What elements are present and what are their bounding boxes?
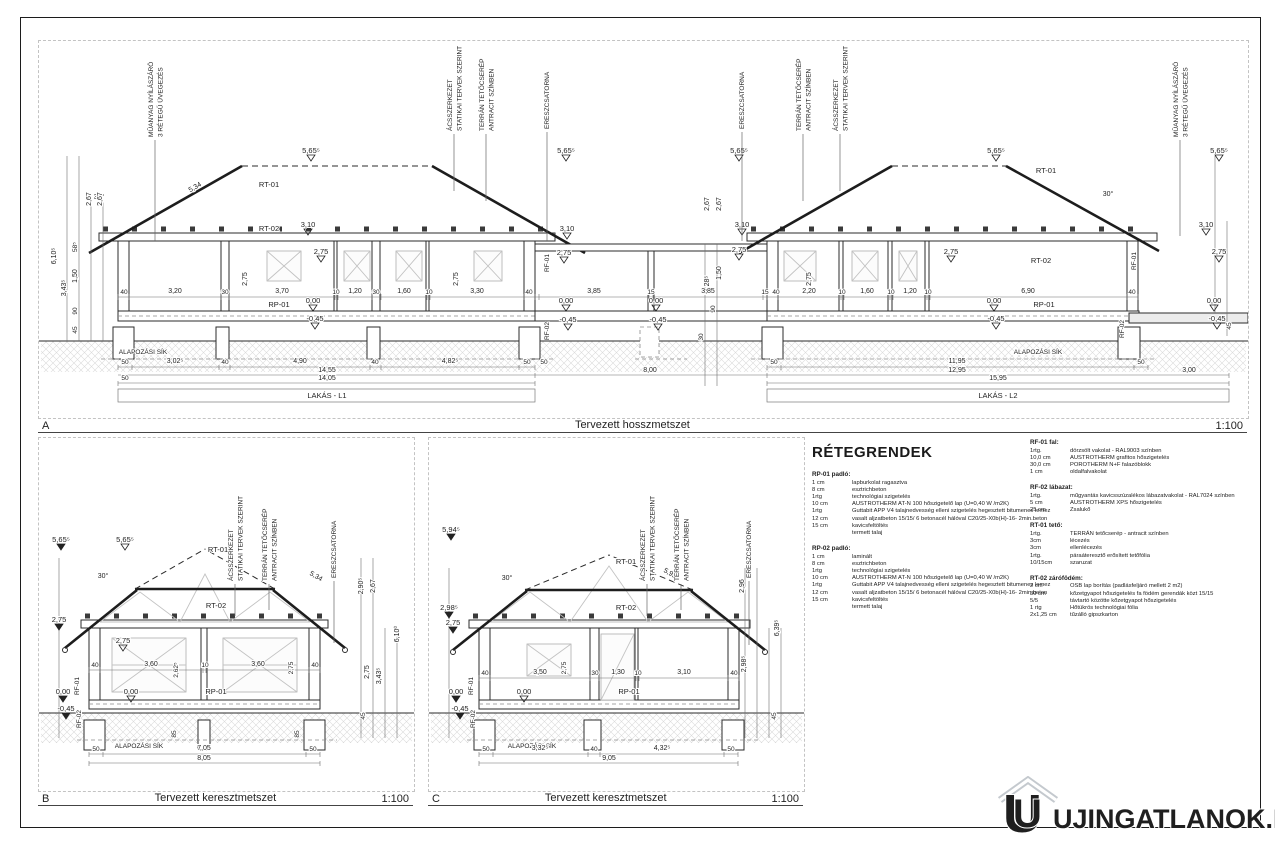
dim-label: 3,20	[168, 288, 182, 295]
dim-label: 6,39⁵	[774, 620, 781, 637]
elevation-marker-icon	[564, 324, 572, 330]
dim-label: 10	[924, 289, 932, 296]
callout-label: ÁCSSZERKEZET	[638, 529, 647, 581]
elevation-marker-icon	[121, 544, 129, 550]
viewport-section-b: 5,65⁵5,65⁵30°2,75RT-01RT-022,750,00-0,45…	[38, 437, 415, 792]
dim-label: 1,50	[716, 266, 723, 280]
dim-label: -0,45	[1208, 314, 1225, 323]
dim-label: RP-01	[205, 687, 226, 696]
dim-label: -0,45	[306, 314, 323, 323]
legend-row: 2x1,25 cmtűzálló gipszkarton	[1030, 612, 1258, 619]
dim-label: 2,75	[446, 618, 461, 627]
dim-label: 2,67	[716, 197, 723, 211]
callout-label: TERRÁN TETŐCSERÉP	[477, 59, 486, 131]
callout-label: ÁCSSZERKEZET	[226, 529, 235, 581]
dim-label: 2,75	[453, 272, 460, 286]
dim-label: 30°	[1103, 190, 1114, 198]
legend-row: 8 cmesztrichbeton	[812, 487, 1027, 494]
dim-label: RT-01	[259, 180, 279, 189]
dim-label: RF-02	[470, 710, 477, 728]
dim-label: 40	[311, 662, 319, 669]
dim-label: RF-02	[1119, 320, 1126, 338]
dim-label: 7,05	[197, 745, 211, 752]
elevation-marker-icon	[560, 257, 568, 263]
legend-group-heading: RF-02 lábazat:	[1030, 484, 1258, 491]
dim-label: 5,65⁵	[116, 535, 134, 544]
section-scale: 1:100	[381, 793, 409, 805]
callout-label: ANTRACIT SZÍNBEN	[270, 518, 279, 581]
callout-label: ERESZCSATORNA	[331, 520, 338, 578]
dim-label: -0,45	[559, 315, 576, 324]
logo-wordmark: UJINGATLANOK.HU	[1053, 804, 1275, 834]
elevation-marker-icon	[992, 323, 1000, 329]
dim-label: RT-01	[208, 545, 228, 554]
legend-row: 10 cmAUSTROTHERM AT-N 100 hőszigetelő la…	[812, 501, 1027, 508]
dim-label: 8,05	[197, 755, 211, 762]
dim-label: 3,32⁵	[532, 745, 549, 752]
legend-group-heading: RP-01 padló:	[812, 471, 1027, 478]
dim-label: 30°	[502, 574, 513, 582]
dim-label: 30	[221, 289, 229, 296]
section-title: Tervezett hosszmetszet	[575, 419, 690, 431]
legend-row: 30 cmkőzetgyapot hőszigetelés fa födém g…	[1030, 591, 1258, 598]
callout-label: ERESZCSATORNA	[746, 520, 753, 578]
section-letter: C	[432, 793, 440, 805]
dim-label: 10	[887, 289, 895, 296]
dim-label: 2,67	[370, 579, 377, 593]
legend-title: RÉTEGRENDEK	[812, 444, 1027, 461]
logo-letter-accent: U	[1013, 792, 1042, 836]
dim-label: 2,75	[52, 615, 67, 624]
dim-label: 50	[1137, 359, 1145, 366]
elevation-marker-icon	[735, 254, 743, 260]
dim-label: RF-01	[544, 254, 551, 272]
dim-label: 3,43⁵	[376, 668, 383, 685]
dim-label: 11,95	[949, 358, 966, 365]
section-b-drawing: 5,65⁵5,65⁵30°2,75RT-01RT-022,750,00-0,45…	[39, 438, 414, 791]
section-scale: 1:100	[771, 793, 799, 805]
dim-label: 45	[1226, 322, 1233, 330]
dim-label: 15	[647, 289, 655, 296]
callout-label: TERRÁN TETŐCSERÉP	[672, 509, 681, 581]
dim-label: 1,50	[72, 269, 79, 283]
dim-label: 50	[523, 359, 531, 366]
legend-row: 3cmlécezés	[1030, 538, 1258, 545]
dim-label: 10	[201, 662, 209, 669]
dim-label: RF-02	[544, 322, 551, 340]
dim-label: 3,50	[533, 669, 547, 676]
dim-label: RF-01	[468, 677, 475, 695]
callout-label: STATIKAI TERVEK SZERINT	[457, 46, 464, 131]
dim-label: 3,43⁵	[61, 280, 68, 297]
dim-label: 9,05	[602, 755, 616, 762]
dim-label: 15	[761, 289, 769, 296]
dim-label: 90	[710, 305, 717, 313]
legend-group-heading: RF-01 fal:	[1030, 439, 1258, 446]
dim-label: 10	[425, 289, 433, 296]
callout-label: MŰANYAG NYÍLÁSZÁRÓ	[1171, 62, 1180, 137]
dim-label: 0,00	[56, 687, 71, 696]
legend-row: termett talaj	[812, 604, 1027, 611]
dim-label: LAKÁS - L2	[978, 391, 1017, 400]
dim-label: RT-02	[616, 603, 636, 612]
dim-label: RP-01	[1033, 300, 1054, 309]
dim-label: 0,00	[987, 296, 1002, 305]
dim-label: 5,65⁵	[52, 535, 70, 544]
dim-label: 50	[770, 359, 778, 366]
dim-label: 5,65⁵	[987, 146, 1005, 155]
legend-row: 1rtgGuttabit APP V4 talajnedvesség ellen…	[812, 508, 1027, 515]
legend-row: 1rtg.dörzsölt vakolat - RAL9003 színben	[1030, 448, 1258, 455]
legend-row: 12 cmvasalt aljzatbeton 15/15/ 6 betonac…	[812, 590, 1027, 597]
dim-label: ALAPOZÁSI SÍK	[119, 347, 168, 356]
dim-label: 30°	[98, 572, 109, 580]
callout-label: ANTRACIT SZÍNBEN	[487, 68, 496, 131]
legend-row: 1 cmlaminált	[812, 554, 1027, 561]
dim-label: 2,75	[116, 636, 131, 645]
callout-label: ÁCSSZERKEZET	[831, 79, 840, 131]
dim-label: 2,96	[739, 579, 746, 593]
dim-label: 10	[332, 289, 340, 296]
dim-label: 2,75	[288, 661, 295, 674]
dim-label: RF-02	[76, 710, 83, 728]
dim-label: 40	[371, 359, 379, 366]
dim-label: 85	[294, 730, 301, 738]
dim-label: -0,45	[451, 704, 468, 713]
dim-label: 10	[838, 289, 846, 296]
legend-row: 3cmellenlécezés	[1030, 545, 1258, 552]
dim-label: 40	[221, 359, 229, 366]
dim-label: 14,55	[318, 367, 336, 374]
dim-label: 2,75	[732, 245, 747, 254]
dim-label: 2,98⁵	[741, 656, 748, 673]
callout-label: ERESZCSATORNA	[544, 71, 551, 129]
dim-label: 4,82⁵	[442, 358, 459, 365]
dim-label: 90	[72, 307, 79, 315]
dim-label: 85	[171, 730, 178, 738]
title-row-c: C Tervezett keresztmetszet 1:100	[428, 790, 803, 806]
dim-label: 30	[591, 670, 599, 677]
dim-label: 5,65⁵	[1210, 146, 1228, 155]
elevation-marker-icon	[1215, 256, 1223, 262]
callout-label: ÁCSSZERKEZET	[445, 79, 454, 131]
section-title: Tervezett keresztmetszet	[545, 792, 667, 804]
dim-label: RT-01	[616, 557, 636, 566]
dim-label: ALAPOZÁSI SÍK	[1014, 347, 1063, 356]
callout-label: STATIKAI TERVEK SZERINT	[843, 46, 850, 131]
legend-row: 25 cmZsalukő	[1030, 507, 1258, 514]
section-scale: 1:100	[1215, 420, 1243, 432]
dim-label: 14,05	[318, 375, 336, 382]
callout-label: ERESZCSATORNA	[739, 71, 746, 129]
legend-group-heading: RT-01 tető:	[1030, 522, 1258, 529]
dim-label: 3,10	[1199, 220, 1214, 229]
dim-label: 50	[121, 359, 129, 366]
dim-label: 3,10	[560, 224, 575, 233]
elevation-marker-icon	[1215, 155, 1223, 161]
dim-label: 45	[360, 712, 367, 720]
dim-label: -0,45	[987, 314, 1004, 323]
dim-label: RF-01	[1131, 252, 1138, 270]
dim-label: 30	[698, 333, 705, 341]
legend-row: 12 cmvasalt aljzatbeton 15/15/ 6 betonac…	[812, 516, 1027, 523]
dim-label: 50	[309, 746, 317, 753]
legend-row: 1rtg.páraáteresztő erősített tetőfólia	[1030, 553, 1258, 560]
legend-row: 1rtg.TERRÁN tetőcserép - antracit színbe…	[1030, 531, 1258, 538]
legend-row: 1 rtgHőtükrös technológiai fólia	[1030, 605, 1258, 612]
legend-row: 30,0 cmPOROTHERM N+F falazóblokk	[1030, 462, 1258, 469]
elevation-marker-icon	[57, 544, 65, 550]
dim-label: 3,10	[677, 669, 691, 676]
dim-label: RP-01	[268, 300, 289, 309]
dim-label: 3,85	[587, 288, 601, 295]
elevation-marker-icon	[563, 233, 571, 239]
legend-wall-roof-layers: RF-01 fal:1rtg.dörzsölt vakolat - RAL900…	[1030, 431, 1258, 619]
dim-label: 50	[121, 375, 129, 382]
dim-label: 40	[730, 670, 738, 677]
section-title: Tervezett keresztmetszet	[155, 792, 277, 804]
legend-floor-layers: RÉTEGRENDEK RP-01 padló:1 cmlapburkolat …	[812, 444, 1027, 611]
dim-label: 40	[1128, 289, 1136, 296]
dim-label: 50	[92, 746, 100, 753]
elevation-marker-icon	[452, 696, 460, 702]
dim-label: 58⁵	[72, 242, 79, 252]
dim-label: 2,75	[806, 272, 813, 286]
dim-label: 12,95	[948, 367, 966, 374]
dim-label: 2,90⁵	[358, 578, 365, 595]
dim-label: 3,60	[144, 661, 158, 668]
section-a-drawing: 5,65⁵5,65⁵5,65⁵5,65⁵5,65⁵3,103,103,103,1…	[39, 41, 1248, 418]
dim-label: 2,75	[242, 272, 249, 286]
legend-row: 10 cmAUSTROTHERM AT-N 100 hőszigetelő la…	[812, 575, 1027, 582]
dim-label: 2,98⁵	[440, 603, 458, 612]
elevation-marker-icon	[1213, 323, 1221, 329]
dim-label: 2,75	[944, 247, 959, 256]
legend-row: 1 cmlapburkolat ragasztva	[812, 480, 1027, 487]
title-row-b: B Tervezett keresztmetszet 1:100	[38, 790, 413, 806]
elevation-marker-icon	[449, 627, 457, 633]
dim-label: 5,94⁵	[442, 525, 460, 534]
legend-row: 5/5távtartó közötte kőzetgyapot hősziget…	[1030, 598, 1258, 605]
callout-label: TERRÁN TETŐCSERÉP	[794, 59, 803, 131]
elevation-marker-icon	[59, 696, 67, 702]
elevation-marker-icon	[1210, 305, 1218, 311]
dim-label: 40	[481, 670, 489, 677]
dim-label: 40	[120, 289, 128, 296]
legend-row: 10/15cmszaruzat	[1030, 560, 1258, 567]
elevation-marker-icon	[317, 256, 325, 262]
drawing-sheet: 5,65⁵5,65⁵5,65⁵5,65⁵5,65⁵3,103,103,103,1…	[0, 0, 1280, 844]
dim-label: RT-02	[1031, 256, 1051, 265]
dim-label: 2,75	[314, 247, 329, 256]
callout-label: TERRÁN TETŐCSERÉP	[260, 509, 269, 581]
legend-row: 10,0 cmAUSTROTHERM grafitos hőszigetelés	[1030, 455, 1258, 462]
dim-label: 5,34	[308, 570, 323, 583]
dim-label: RT-01	[1036, 166, 1056, 175]
elevation-marker-icon	[309, 305, 317, 311]
elevation-marker-icon	[1202, 229, 1210, 235]
dim-label: 0,00	[306, 296, 321, 305]
dim-label: 2,67	[86, 192, 93, 206]
legend-group-heading: RT-02 zárófödém:	[1030, 575, 1258, 582]
legend-row: 1rtgtechnológiai szigetelés	[812, 568, 1027, 575]
elevation-marker-icon	[311, 323, 319, 329]
section-letter: B	[42, 793, 49, 805]
dim-label: 1,30	[611, 669, 625, 676]
dim-label: 1,20	[348, 288, 362, 295]
dim-label: 3,60	[251, 661, 265, 668]
legend-row: 1rtg.műgyantás kavicsszúzalékos lábazatv…	[1030, 493, 1258, 500]
elevation-marker-icon	[562, 305, 570, 311]
dim-label: 1,60	[397, 288, 411, 295]
dim-label: 1,20	[903, 288, 917, 295]
dim-label: 30	[372, 289, 380, 296]
dim-label: 15,95	[989, 375, 1007, 382]
dim-label: 3,10	[301, 220, 316, 229]
elevation-marker-icon	[447, 534, 455, 540]
callout-label: STATIKAI TERVEK SZERINT	[238, 496, 245, 581]
dim-label: ALAPOZÁSI SÍK	[115, 741, 164, 750]
dim-label: 0,00	[649, 296, 664, 305]
dim-label: 2,67	[97, 192, 104, 206]
dim-label: 45	[771, 712, 778, 720]
callout-label: STATIKAI TERVEK SZERINT	[650, 496, 657, 581]
callout-label: ANTRACIT SZÍNBEN	[682, 518, 691, 581]
dim-label: 45	[72, 326, 79, 334]
dim-label: 3,70	[275, 288, 289, 295]
legend-column-floors: RP-01 padló:1 cmlapburkolat ragasztva8 c…	[812, 471, 1027, 611]
dim-label: RP-01	[618, 687, 639, 696]
callout-label: 3 RÉTEGŰ ÜVEGEZÉS	[1181, 67, 1190, 137]
elevation-marker-icon	[990, 305, 998, 311]
legend-row: 8 cmesztrichbeton	[812, 561, 1027, 568]
dim-label: 50	[727, 746, 735, 753]
dim-label: 5,65⁵	[557, 146, 575, 155]
legend-group-heading: RP-02 padló:	[812, 545, 1027, 552]
dim-label: 50	[482, 746, 490, 753]
dim-label: 40	[772, 289, 780, 296]
callout-label: 3 RÉTEGŰ ÜVEGEZÉS	[156, 67, 165, 137]
viewport-section-c: 5,94⁵30°2,98⁵2,75RT-01RT-025,932,960,00-…	[428, 437, 805, 792]
dim-label: 3,02⁵	[167, 358, 184, 365]
dim-label: 5,65⁵	[730, 146, 748, 155]
dim-label: 3,00	[1182, 367, 1196, 374]
elevation-marker-icon	[55, 624, 63, 630]
legend-row: 1rtgGuttabit APP V4 talajnedvesség ellen…	[812, 582, 1027, 589]
elevation-marker-icon	[307, 155, 315, 161]
dim-label: 6,10⁰	[393, 626, 401, 643]
dim-label: 2,75	[557, 248, 572, 257]
dim-label: 50	[540, 359, 548, 366]
legend-row: 5 cmAUSTROTHERM XPS hőszigetelés	[1030, 500, 1258, 507]
dim-label: 40	[525, 289, 533, 296]
legend-row: termett talaj	[812, 530, 1027, 537]
dim-label: 1,60	[860, 288, 874, 295]
dim-label: RT-02	[206, 601, 226, 610]
dim-label: RT-02	[259, 224, 279, 233]
legend-row: 15 cmkavicsfeltöltés	[812, 523, 1027, 530]
legend-row: 1rtgtechnológiai szigetelés	[812, 494, 1027, 501]
viewport-section-a: 5,65⁵5,65⁵5,65⁵5,65⁵5,65⁵3,103,103,103,1…	[38, 40, 1249, 419]
dim-label: 2,75	[364, 665, 371, 679]
dim-label: 2,20	[802, 288, 816, 295]
legend-row: 2 cmOSB lap borítás (padlásfeljáró melle…	[1030, 583, 1258, 590]
legend-row: 1 cmoldalfalvakolat	[1030, 469, 1258, 476]
elevation-marker-icon	[947, 256, 955, 262]
dim-label: 40	[590, 746, 598, 753]
dim-label: 2,67	[704, 197, 711, 211]
dim-label: 5,65⁵	[302, 146, 320, 155]
dim-label: 0,00	[449, 687, 464, 696]
section-c-drawing: 5,94⁵30°2,98⁵2,75RT-01RT-025,932,960,00-…	[429, 438, 804, 791]
elevation-marker-icon	[992, 155, 1000, 161]
dim-label: 40	[91, 662, 99, 669]
dim-label: 2,75	[1212, 247, 1227, 256]
callout-label: MŰANYAG NYÍLÁSZÁRÓ	[146, 62, 155, 137]
dim-label: 0,00	[559, 296, 574, 305]
brand-logo: U U UJINGATLANOK.HU	[975, 776, 1275, 838]
dim-label: 3,30	[470, 288, 484, 295]
dim-label: 4,90	[293, 358, 307, 365]
elevation-marker-icon	[562, 155, 570, 161]
dim-label: 4,32⁵	[654, 745, 671, 752]
dim-label: 6,90	[1021, 288, 1035, 295]
dim-label: -0,45	[57, 704, 74, 713]
dim-label: 3,85	[701, 288, 715, 295]
section-letter: A	[42, 420, 49, 432]
dim-label: RF-01	[74, 677, 81, 695]
dim-label: LAKÁS - L1	[307, 391, 346, 400]
dim-label: 10	[634, 670, 642, 677]
window	[784, 251, 917, 281]
dim-label: 6,10⁵	[51, 248, 58, 265]
dim-label: 8,00	[643, 367, 657, 374]
dim-label: 0,00	[517, 687, 532, 696]
dim-label: 0,00	[124, 687, 139, 696]
window	[267, 251, 502, 281]
legend-row: 15 cmkavicsfeltöltés	[812, 597, 1027, 604]
dim-label: 2,62⁵	[173, 662, 180, 678]
dim-label: -0,45	[649, 315, 666, 324]
legend-column-walls-roof: RF-01 fal:1rtg.dörzsölt vakolat - RAL900…	[1030, 439, 1258, 619]
dim-label: 0,00	[1207, 296, 1222, 305]
dim-label: 2,75	[561, 661, 568, 674]
callout-label: ANTRACIT SZÍNBEN	[804, 68, 813, 131]
